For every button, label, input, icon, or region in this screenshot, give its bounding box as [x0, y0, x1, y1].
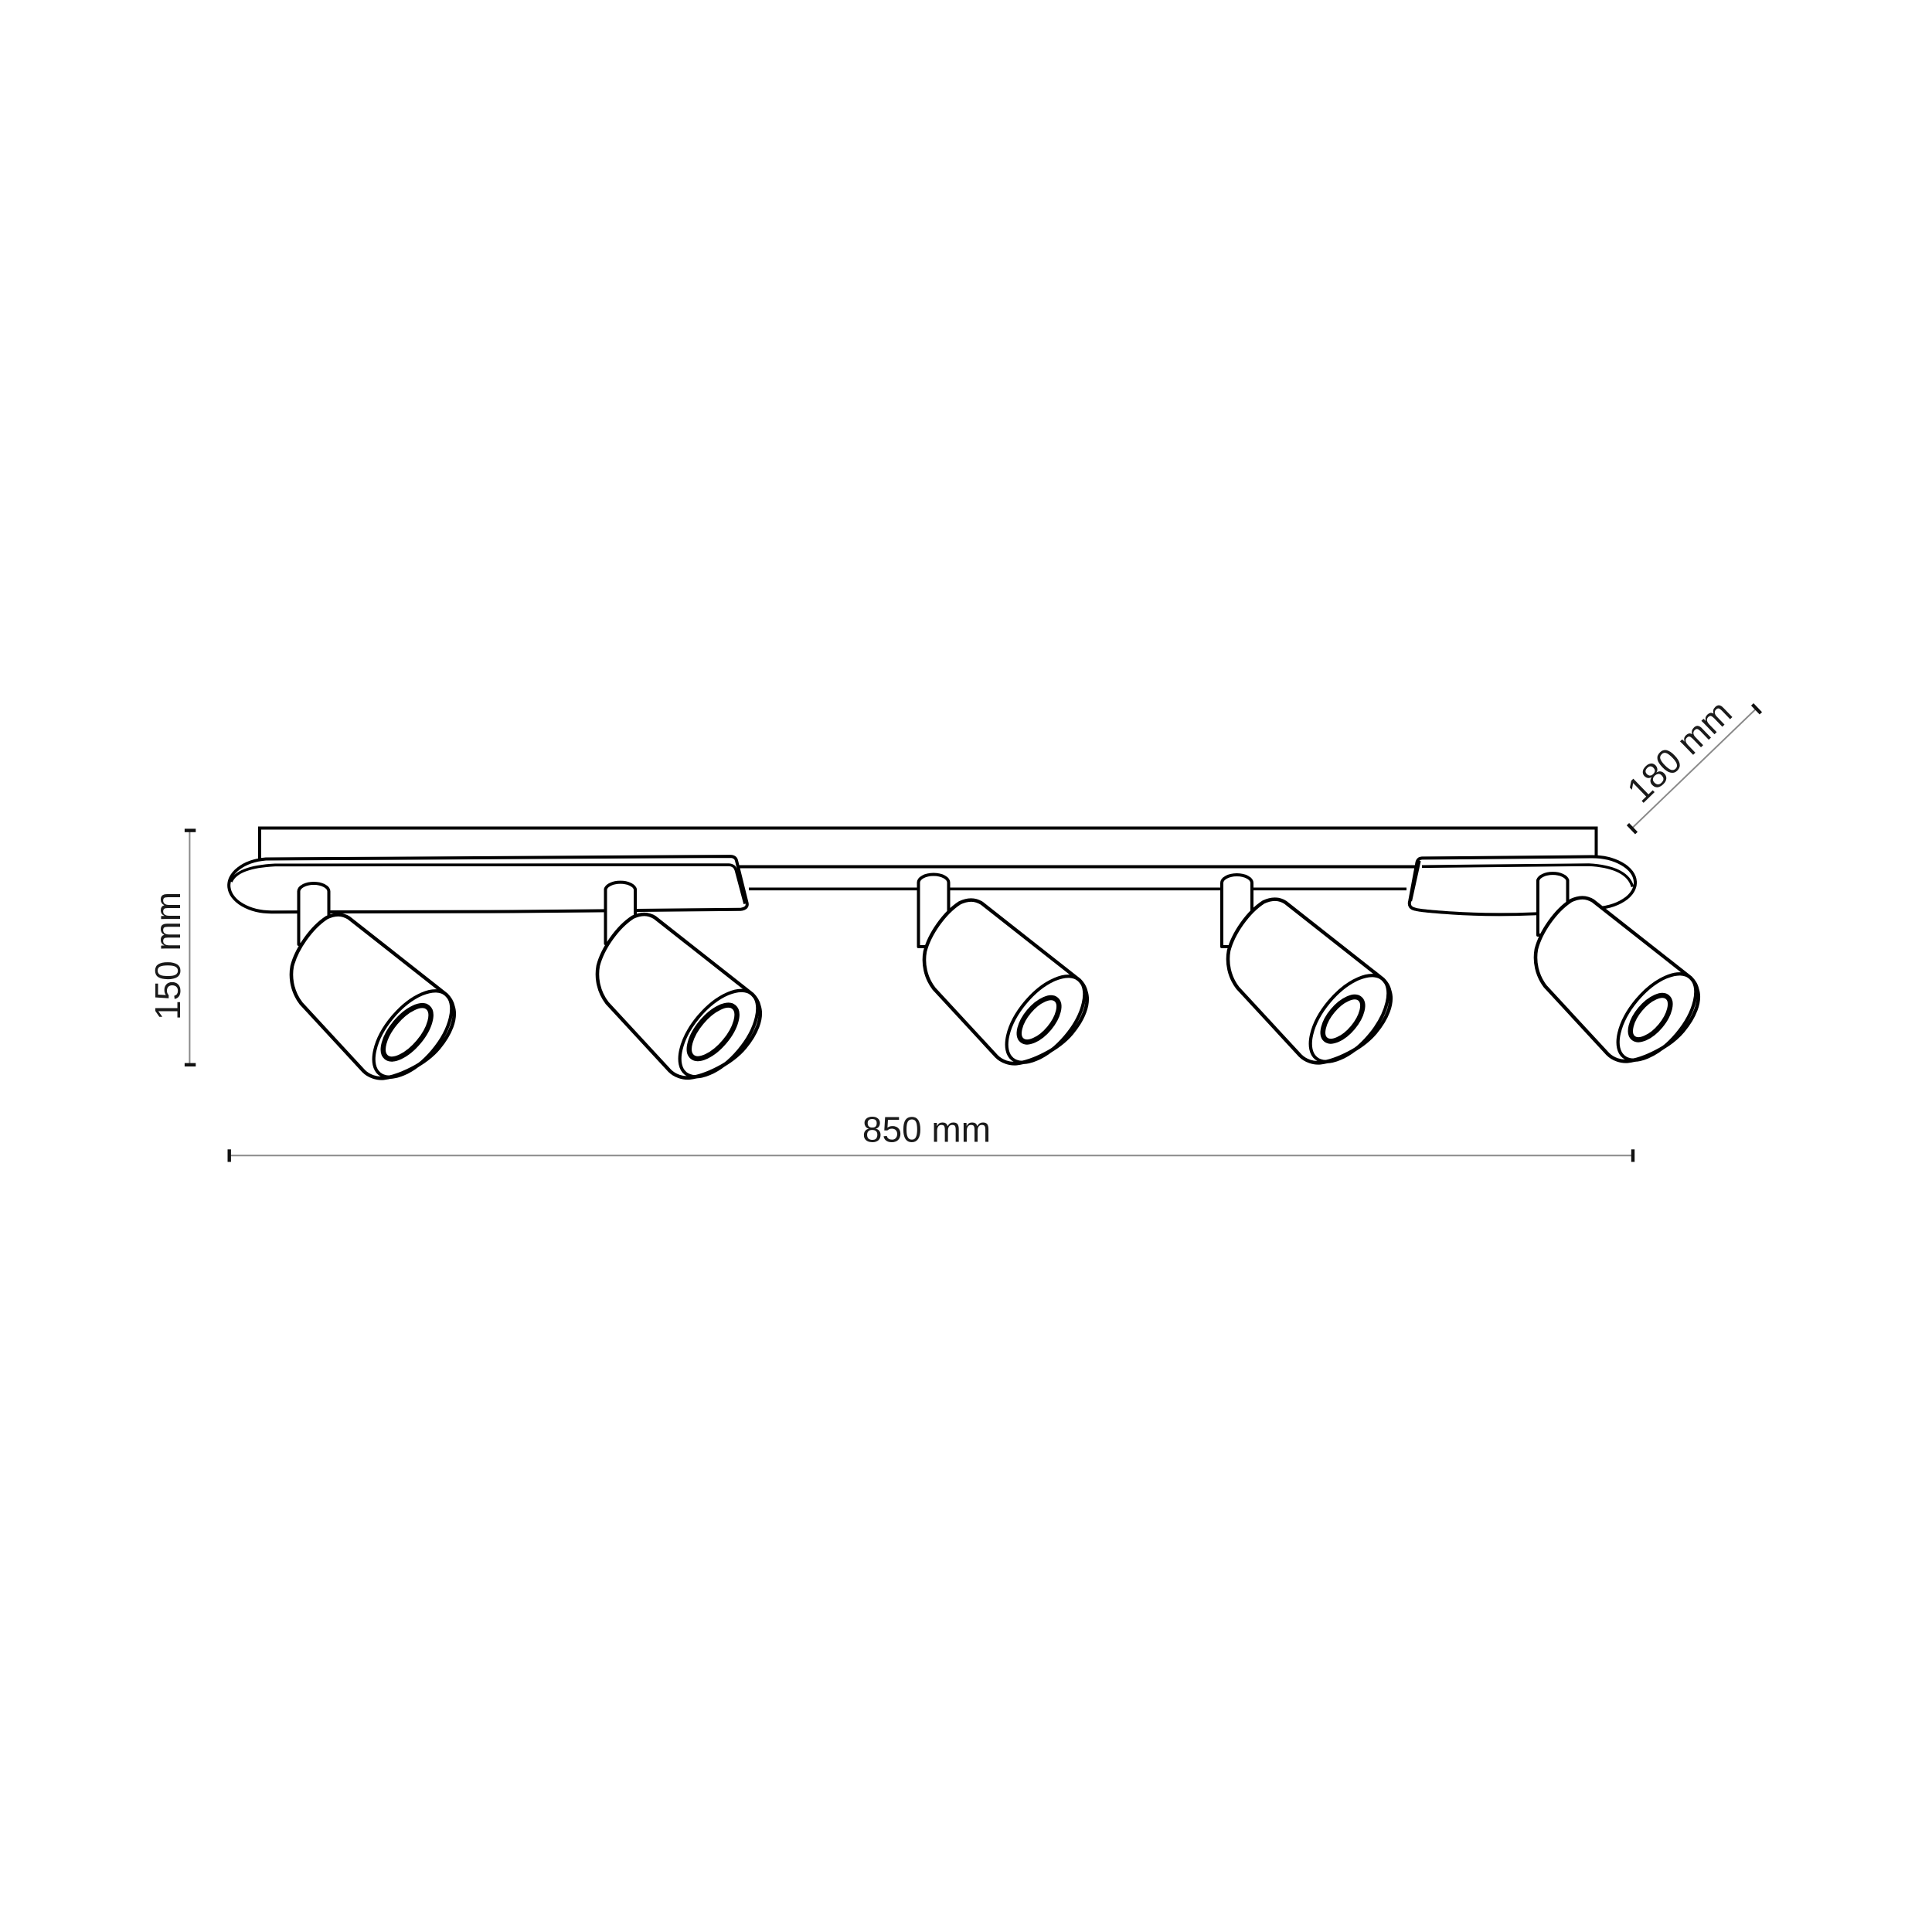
svg-text:150 mm: 150 mm	[148, 892, 188, 1020]
svg-text:850 mm: 850 mm	[862, 1110, 991, 1150]
